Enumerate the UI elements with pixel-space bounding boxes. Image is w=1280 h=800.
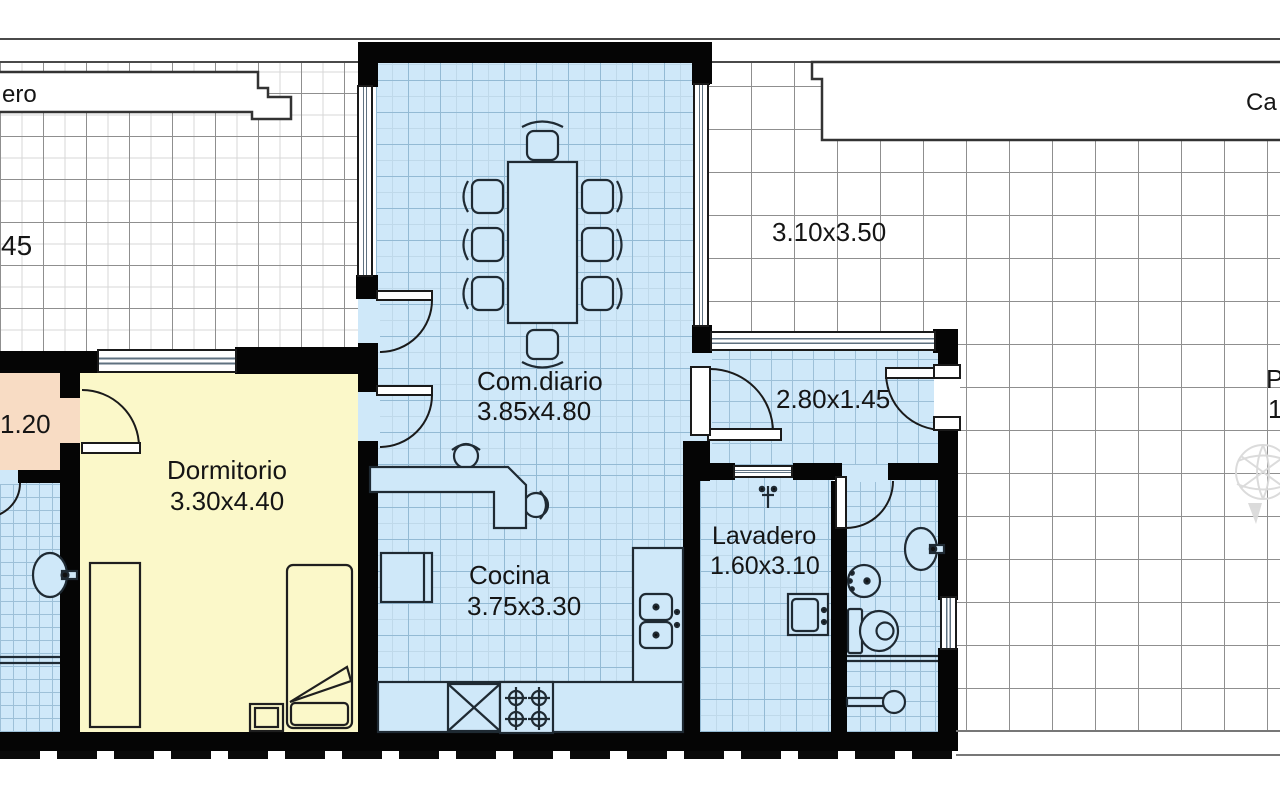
room-label-cocina: Cocina [469, 562, 550, 589]
chair-back [464, 229, 469, 260]
door-arc [846, 481, 893, 528]
hall-dimensions: 2.80x1.45 [776, 386, 890, 413]
chair [472, 277, 503, 310]
bidet-dot [848, 579, 852, 583]
drain-dot [654, 605, 659, 610]
bidet-dot [850, 571, 854, 575]
door-jamb [934, 365, 960, 378]
dining-table-set [464, 122, 622, 368]
chair [582, 180, 613, 213]
room-label-dormitorio: Dormitorio [167, 457, 287, 484]
door-leaf [377, 291, 432, 300]
chair [582, 228, 613, 261]
bidet-drain [864, 578, 869, 583]
pasillo-dimensions: 1.20 [0, 411, 51, 438]
door-leaf [377, 386, 432, 395]
partial-label-right-num: 1 [1268, 396, 1280, 423]
floor-plan: ero Ca 45 3.10x3.50 Com.diario 3.85x4.80… [0, 0, 1280, 800]
chair-back [617, 229, 622, 260]
door-arc [0, 483, 20, 517]
chair [527, 131, 558, 160]
laundry-tub-basin [792, 599, 818, 631]
chair-back [617, 181, 622, 212]
desk [370, 467, 526, 528]
chair-back [522, 122, 563, 128]
bed-pillow [291, 703, 348, 725]
door-arc [710, 369, 773, 432]
door-leaf [886, 368, 940, 378]
bathroom2-fixtures [0, 553, 77, 663]
tap-dot [772, 487, 776, 491]
chair [582, 277, 613, 310]
partial-dimension-left: 45 [1, 231, 32, 260]
plan-drawing-layer [0, 0, 1280, 800]
tap-dot [675, 623, 679, 627]
partial-label-top-right: Ca [1246, 90, 1277, 115]
faucet-dot [62, 572, 69, 579]
patio-dimensions: 3.10x3.50 [772, 219, 886, 246]
dining-table [508, 162, 577, 323]
bidet-dot [850, 587, 854, 591]
desk-set [370, 444, 548, 528]
dormitorio-furniture [90, 563, 352, 731]
room-dimensions-cocina: 3.75x3.30 [467, 593, 581, 620]
room-dimensions-dormitorio: 3.30x4.40 [170, 488, 284, 515]
door-leaf [836, 477, 846, 528]
nightstand-top [255, 708, 278, 727]
shower-arm [847, 698, 884, 706]
tap-dot [822, 620, 826, 624]
tap-dot [675, 610, 679, 614]
chair [472, 228, 503, 261]
door-jamb [934, 417, 960, 430]
bathroom-fixtures [847, 528, 944, 713]
wardrobe [90, 563, 140, 727]
watermark-logo-icon [1236, 445, 1280, 524]
faucet-dot [930, 546, 936, 552]
chair-back [617, 278, 622, 309]
room-dimensions-lavadero: 1.60x3.10 [710, 553, 820, 579]
tap-dot [760, 487, 764, 491]
tap-dot [822, 608, 826, 612]
drain-dot [654, 633, 659, 638]
chair-back [464, 278, 469, 309]
door-arc [82, 390, 139, 447]
room-label-lavadero: Lavadero [712, 523, 816, 549]
door-arc [380, 395, 432, 447]
top-right-band [812, 62, 1280, 140]
room-dimensions-comdiario: 3.85x4.80 [477, 398, 591, 425]
partial-label-top-left: ero [2, 82, 37, 107]
chair [472, 180, 503, 213]
toilet-bowl [860, 611, 898, 651]
shower-head [883, 691, 905, 713]
door-leaf [82, 443, 140, 453]
stove [500, 682, 553, 733]
top-left-band [0, 72, 291, 119]
chair-back [464, 181, 469, 212]
room-label-comdiario: Com.diario [477, 368, 603, 395]
door-leaf [691, 367, 710, 435]
door-leaf [708, 429, 781, 440]
chair [527, 330, 558, 359]
door-arc [380, 300, 432, 352]
partial-label-right-p: P [1266, 366, 1280, 393]
